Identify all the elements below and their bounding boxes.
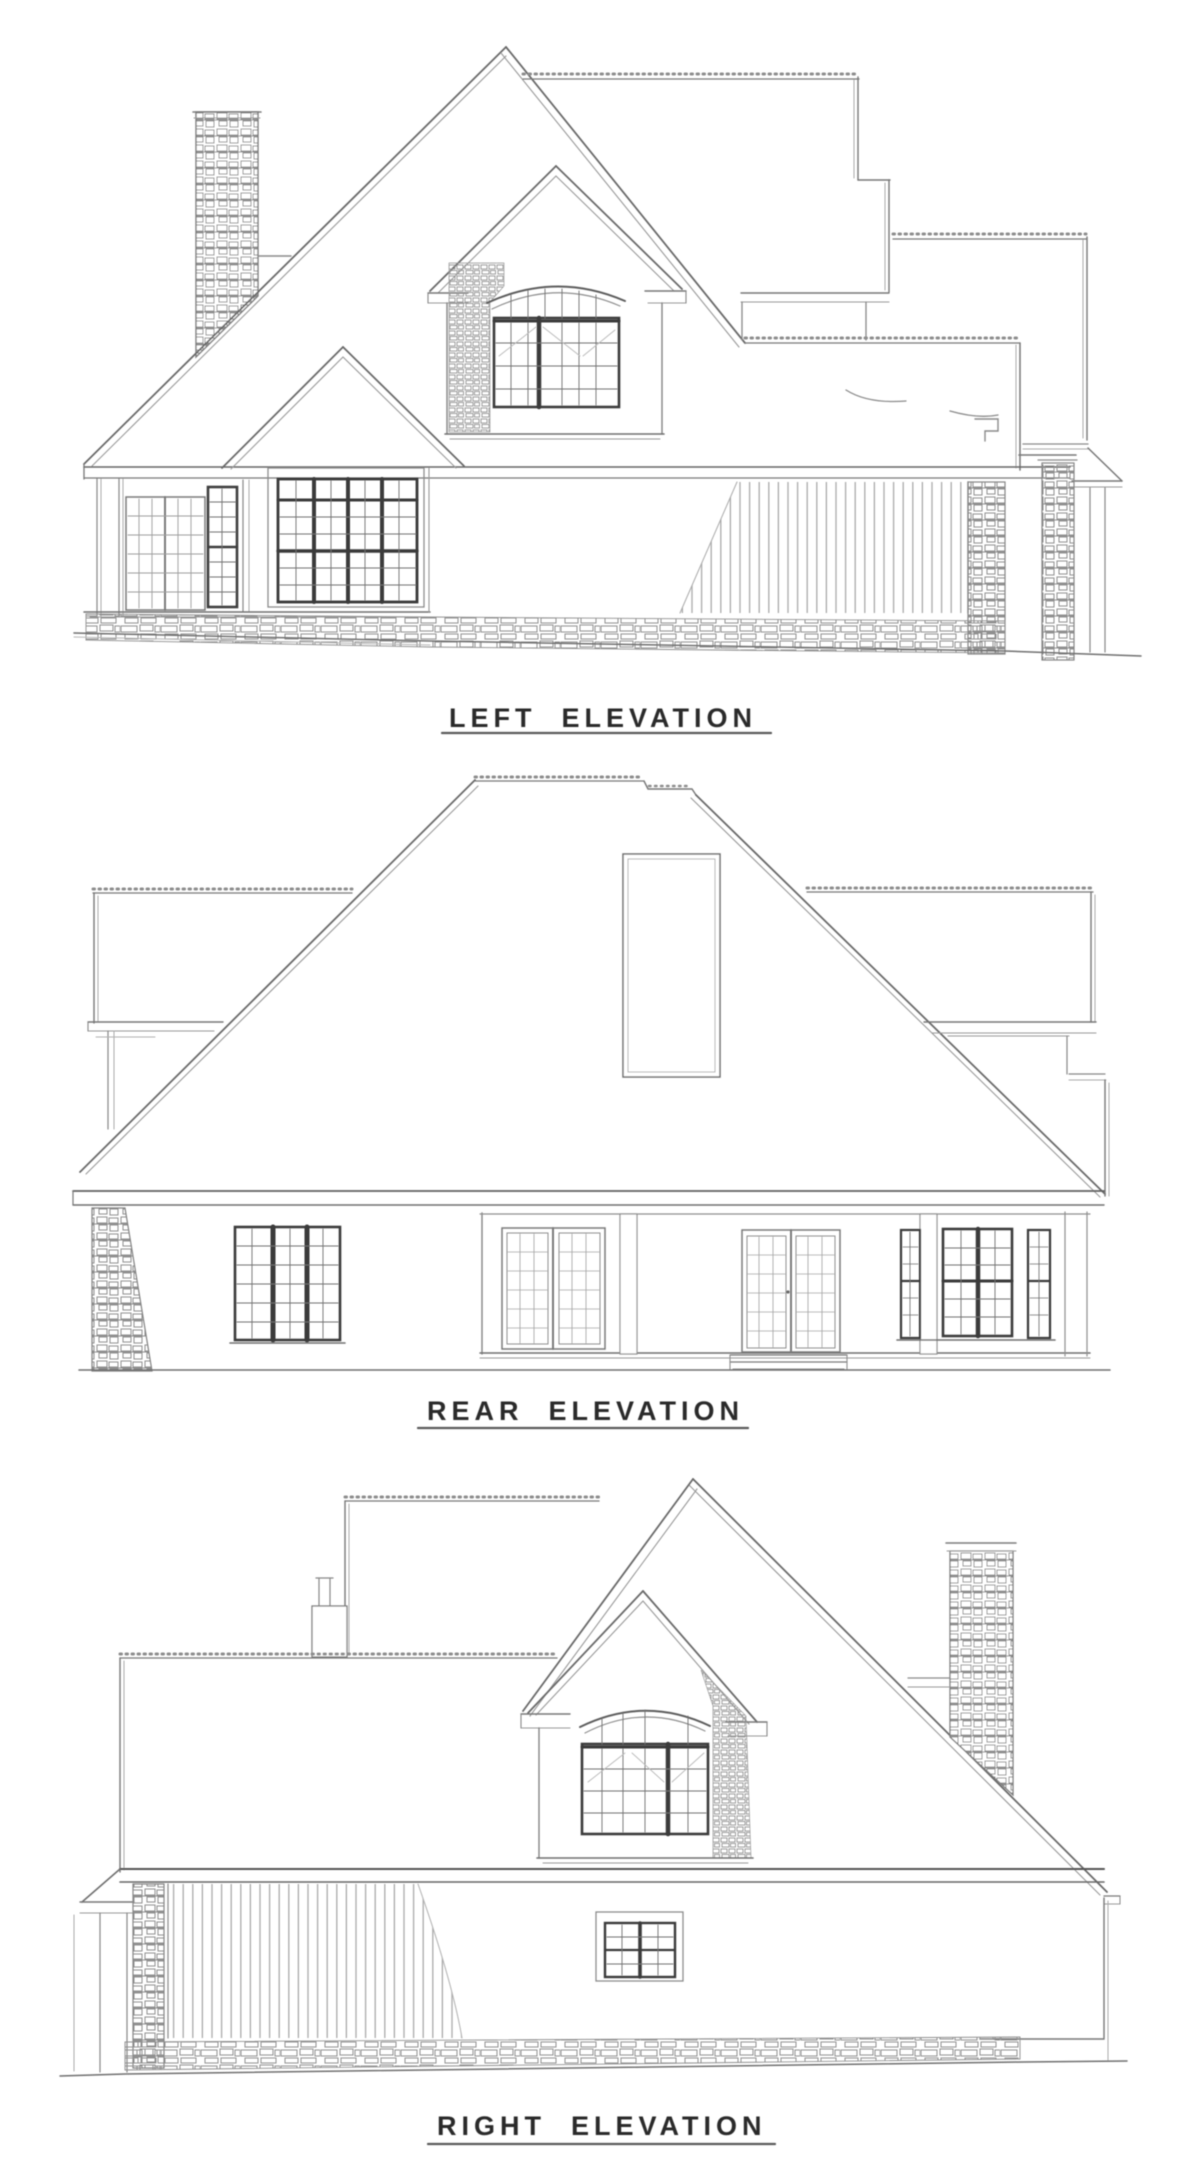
svg-text:RIGHT ELEVATION: RIGHT ELEVATION [437, 2111, 767, 2141]
svg-text:REAR ELEVATION: REAR ELEVATION [427, 1396, 744, 1426]
svg-text:LEFT ELEVATION: LEFT ELEVATION [449, 703, 757, 733]
